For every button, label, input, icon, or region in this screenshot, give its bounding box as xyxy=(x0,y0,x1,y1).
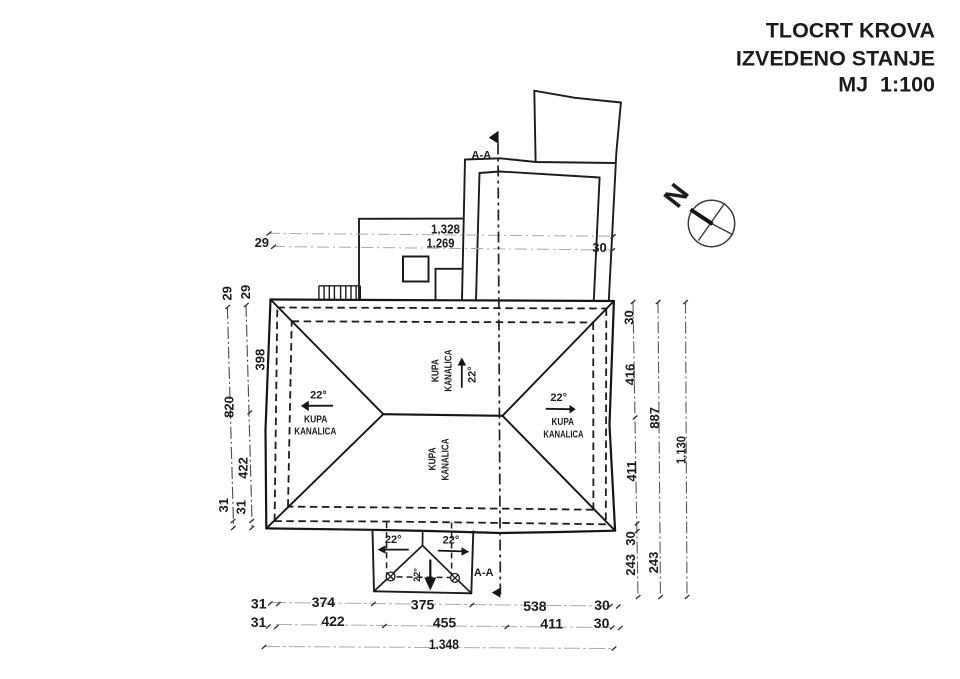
svg-text:455: 455 xyxy=(433,614,457,630)
svg-text:887: 887 xyxy=(647,407,662,429)
svg-text:KUPA: KUPA xyxy=(304,414,328,426)
svg-text:KANALICA: KANALICA xyxy=(440,438,452,480)
svg-text:243: 243 xyxy=(646,552,661,574)
svg-text:KANALICA: KANALICA xyxy=(543,428,584,440)
svg-text:31: 31 xyxy=(251,614,267,630)
svg-text:416: 416 xyxy=(623,364,638,386)
svg-text:22°: 22° xyxy=(443,535,460,547)
svg-text:22°: 22° xyxy=(550,392,567,404)
svg-text:398: 398 xyxy=(252,349,267,371)
svg-text:375: 375 xyxy=(411,597,435,613)
svg-text:30: 30 xyxy=(622,310,637,324)
svg-text:MJ 1:100: MJ 1:100 xyxy=(838,73,935,97)
svg-text:KANALICA: KANALICA xyxy=(294,426,336,438)
svg-text:422: 422 xyxy=(236,457,251,479)
svg-text:KUPA: KUPA xyxy=(430,359,442,382)
svg-text:29: 29 xyxy=(220,286,235,300)
svg-text:31: 31 xyxy=(216,498,231,512)
svg-text:22°: 22° xyxy=(467,366,479,383)
svg-text:31: 31 xyxy=(234,500,249,514)
svg-text:30: 30 xyxy=(592,240,606,255)
svg-text:KANALICA: KANALICA xyxy=(443,349,455,391)
svg-text:KUPA: KUPA xyxy=(552,416,575,428)
svg-text:29: 29 xyxy=(255,235,269,250)
svg-text:KUPA: KUPA xyxy=(426,447,438,470)
svg-text:374: 374 xyxy=(312,594,336,610)
svg-text:TLOCRT KROVA: TLOCRT KROVA xyxy=(766,19,935,43)
svg-text:422: 422 xyxy=(321,613,345,629)
svg-text:29: 29 xyxy=(238,285,253,299)
svg-text:A-A: A-A xyxy=(472,149,492,161)
svg-text:1.130: 1.130 xyxy=(673,436,688,464)
svg-text:22°: 22° xyxy=(385,534,402,546)
svg-text:31: 31 xyxy=(251,596,267,612)
svg-text:243: 243 xyxy=(623,554,638,576)
svg-text:538: 538 xyxy=(523,598,547,614)
svg-text:IZVEDENO STANJE: IZVEDENO STANJE xyxy=(736,47,935,71)
svg-text:22°: 22° xyxy=(310,389,327,401)
svg-text:411: 411 xyxy=(540,616,563,632)
svg-text:22°: 22° xyxy=(412,568,422,582)
svg-text:411: 411 xyxy=(624,461,639,482)
svg-text:A-A: A-A xyxy=(474,567,494,579)
svg-text:1.328: 1.328 xyxy=(431,222,460,237)
svg-text:1.348: 1.348 xyxy=(429,636,459,652)
svg-text:30: 30 xyxy=(594,597,610,613)
svg-text:1.269: 1.269 xyxy=(427,235,455,250)
svg-text:820: 820 xyxy=(222,396,237,418)
svg-text:30: 30 xyxy=(594,615,610,631)
